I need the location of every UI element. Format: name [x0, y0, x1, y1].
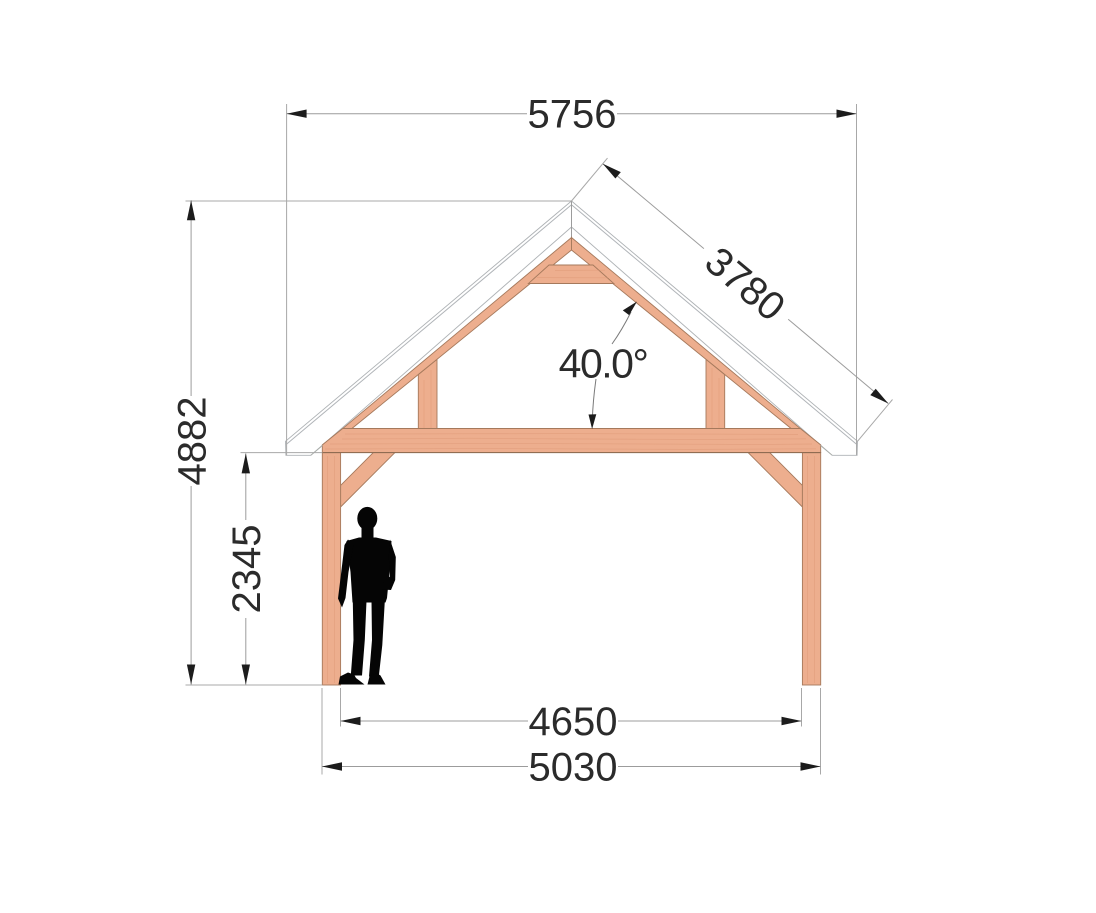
svg-text:4650: 4650	[529, 700, 618, 744]
svg-text:4882: 4882	[171, 397, 215, 486]
svg-text:5030: 5030	[529, 745, 618, 789]
svg-text:5756: 5756	[528, 93, 617, 137]
svg-text:2345: 2345	[225, 525, 269, 614]
svg-text:3780: 3780	[697, 239, 793, 330]
svg-text:40.0°: 40.0°	[559, 341, 648, 387]
